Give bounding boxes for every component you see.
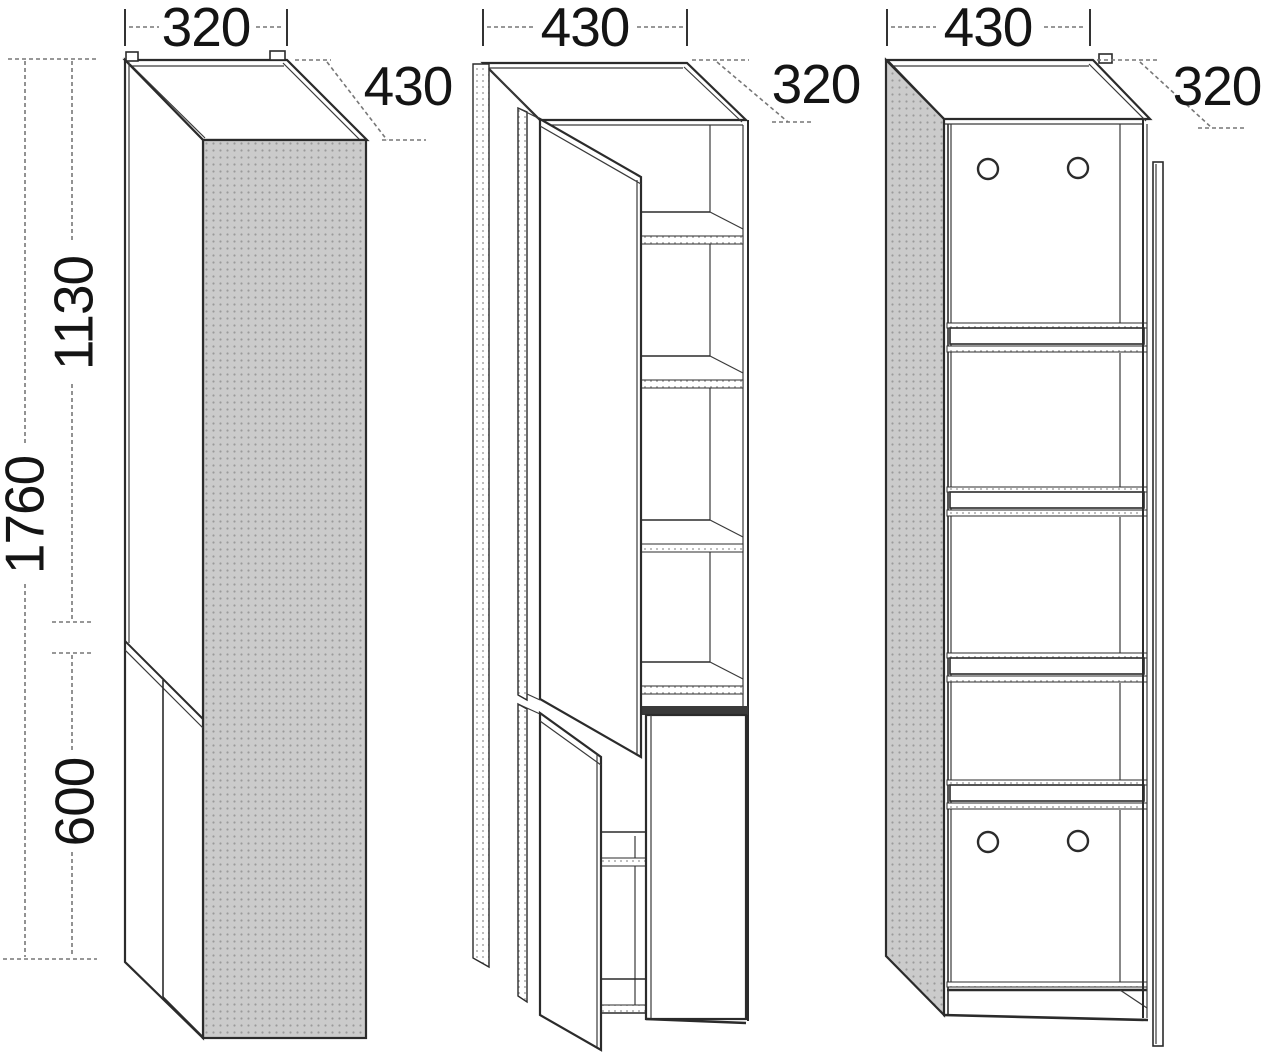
shelf-lower: [601, 832, 648, 866]
door-edge-strip: [518, 704, 527, 1002]
side-panel-hatched: [203, 140, 366, 1038]
dim-left-height-total-value: 1760: [0, 456, 55, 574]
door-open-edge-strip: [1153, 162, 1163, 1046]
shelf-lower: [601, 979, 648, 1013]
mounting-bracket: [1099, 54, 1112, 63]
mounting-hole: [978, 159, 998, 179]
mounting-hole: [978, 832, 998, 852]
dim-left-height-lower-value: 600: [43, 758, 105, 847]
mounting-hole: [1068, 158, 1088, 178]
shelf: [947, 653, 1147, 682]
view-cabinet-open-front: [886, 54, 1163, 1046]
side-panel-edge: [473, 64, 489, 967]
dim-left-height-upper-value: 1130: [42, 256, 104, 370]
mounting-bracket-left: [126, 52, 138, 61]
bottom-edge: [943, 1015, 1148, 1020]
mounting-hole: [1068, 831, 1088, 851]
shelf: [947, 323, 1147, 352]
dim-middle-depth-value: 320: [772, 53, 861, 115]
mounting-bracket-right: [270, 51, 285, 60]
lower-door-open: [518, 704, 601, 1050]
technical-drawing-page: 320 430 1760 1130 600 430 320 430 320: [0, 0, 1280, 1056]
door-front: [540, 119, 641, 757]
side-panel-hatched: [886, 60, 944, 1015]
dim-right-depth-value: 320: [1173, 55, 1262, 117]
shelf: [947, 780, 1147, 809]
shelf: [947, 487, 1147, 516]
dim-right-width-value: 430: [944, 0, 1033, 58]
dim-left-depth-value: 430: [364, 55, 453, 117]
cabinet-dimension-diagram: 320 430 1760 1130 600 430 320 430 320: [0, 0, 1280, 1056]
door-edge-strip: [518, 108, 527, 700]
view-cabinet-closed: [125, 51, 367, 1038]
view-cabinet-open-doors: [473, 63, 748, 1050]
dim-middle-width-value: 430: [541, 0, 630, 58]
upper-door-open: [518, 108, 641, 757]
door-front: [540, 713, 601, 1050]
dim-left-width-value: 320: [162, 0, 251, 58]
interior: [943, 124, 1147, 1014]
bottom-panel: [947, 982, 1147, 1008]
bottom-right-door-closed: [646, 715, 746, 1023]
front-face: [125, 60, 203, 1038]
